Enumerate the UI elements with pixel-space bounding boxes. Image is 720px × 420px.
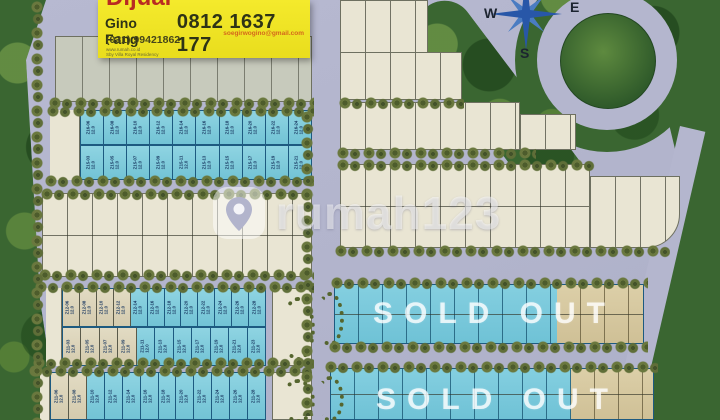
tree-row [334, 244, 670, 258]
block-sold-out-1: SOLD OUT [334, 284, 644, 344]
tree-row [336, 158, 596, 172]
lot: Z12-1212.0 [114, 289, 131, 326]
hedge-arc [316, 292, 344, 346]
lot: Z11-2612.0 [230, 373, 248, 419]
lot: Z12-2412.0 [215, 289, 232, 326]
compass-west-label: W [484, 5, 498, 21]
corner-lot [50, 110, 80, 180]
site-plan-photo: Z16-0612.0 Z16-0812.0 Z16-1012.0 Z16-121… [0, 0, 720, 420]
lot: Z12-1012.0 [97, 289, 114, 326]
lot: Z12-0812.0 [80, 289, 97, 326]
block-r3-ext [590, 176, 680, 248]
compass-south-label: S [520, 45, 529, 61]
sign-fineprint: www.rumah.co.id Sby Villa Royal Residenc… [106, 47, 158, 57]
tree-row [338, 96, 464, 110]
tree-row [328, 340, 648, 354]
block-stair-2 [340, 52, 462, 100]
block-stair-1 [340, 0, 428, 54]
hedge-arc [316, 376, 344, 420]
lot: Z11-1612.0 [141, 373, 159, 419]
lot: Z12-1612.0 [148, 289, 165, 326]
lot-row-z11-even: Z11-0612.0 Z11-0812.0 Z11-1012.0 Z11-121… [50, 372, 266, 420]
lot: Z11-2212.0 [194, 373, 212, 419]
watermark-brand: rumah123 [276, 186, 501, 240]
tree-row [330, 276, 648, 290]
lot: Z12-2612.0 [232, 289, 249, 326]
lot: Z11-1812.0 [159, 373, 177, 419]
lot: Z12-1812.0 [165, 289, 182, 326]
tree-row [28, 364, 312, 378]
block-z11-even: Z11-0612.0 Z11-0812.0 Z11-1012.0 Z11-121… [40, 372, 266, 420]
compass-star-main [490, 0, 562, 50]
lot: Z12-1412.0 [131, 289, 148, 326]
fineprint-line-2: Sby Villa Royal Residency [106, 52, 158, 57]
lot: Z11-1412.0 [123, 373, 141, 419]
lot: Z11-0612.0 [51, 373, 69, 419]
tree-row [324, 360, 658, 374]
lot: Z11-1212.0 [105, 373, 123, 419]
block-r2-step [520, 114, 576, 150]
sold-out-text: SOLD OUT [331, 369, 653, 419]
lot: Z11-2012.0 [176, 373, 194, 419]
watermark-pin-icon [212, 186, 266, 240]
agent-email: soegirwogino@gmail.com [223, 30, 304, 37]
block-z12-z11: Z12-0612.0 Z12-0812.0 Z12-1012.0 Z12-121… [46, 288, 266, 366]
block-z16-z15: Z16-0612.0 Z16-0812.0 Z16-1012.0 Z16-121… [50, 110, 312, 180]
tree-row [46, 104, 314, 118]
agent-sign: Dijual Gino Fang 0812 1637 177 soegirwog… [98, 0, 310, 58]
lot: Z12-2812.0 [249, 289, 265, 326]
compass-east-label: E [570, 0, 579, 15]
lot: Z12-0612.0 [63, 289, 80, 326]
lot: Z11-0812.0 [69, 373, 87, 419]
tree-row [34, 280, 314, 294]
compass-rose: W E S [468, 0, 598, 64]
office-phone: (031) 99421862 [106, 34, 180, 46]
lot: Z11-2812.0 [248, 373, 265, 419]
block-sold-out-2: SOLD OUT [330, 368, 654, 420]
lot: Z12-2212.0 [198, 289, 215, 326]
lot: Z12-2012.0 [181, 289, 198, 326]
tree-column [30, 0, 44, 420]
lot: Z11-2412.0 [212, 373, 230, 419]
sold-out-text: SOLD OUT [335, 285, 643, 343]
tree-column [300, 110, 314, 416]
corner-lot [46, 288, 62, 366]
lot: Z11-1012.0 [87, 373, 105, 419]
watermark: rumah123 [212, 186, 501, 240]
